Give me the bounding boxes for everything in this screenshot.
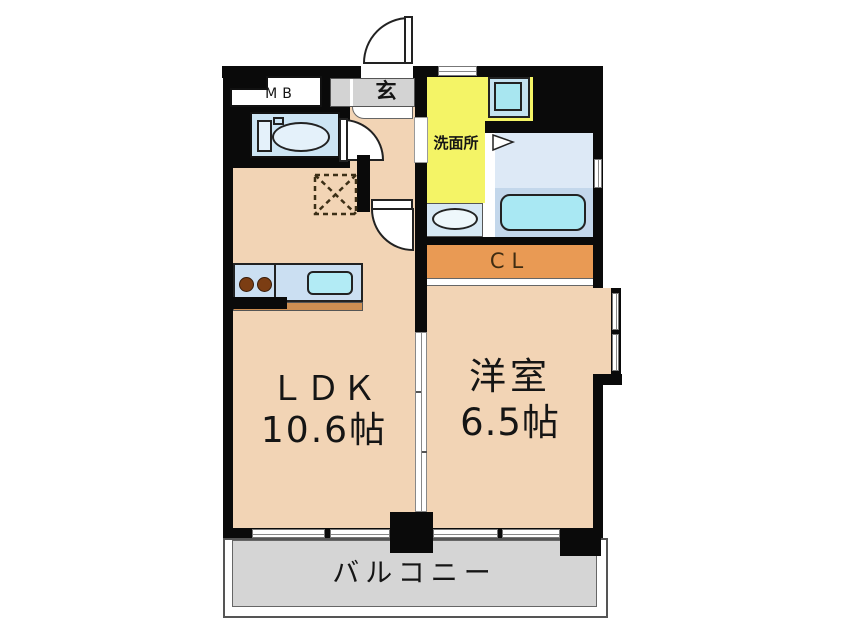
ldk-door-leaf [371,199,413,210]
bay-window-2 [612,334,619,371]
kitchen-counter-divider [274,265,276,300]
toilet-tank-icon [257,120,272,152]
toilet-door-leaf [339,118,348,162]
western-room-window-2 [502,529,560,538]
sliding-door-handle-1 [416,391,421,393]
bathtub-icon [500,194,586,231]
bay-window-1 [612,293,619,330]
washroom-top-window [438,66,477,76]
western-room-window-1 [433,529,498,538]
sliding-door [415,332,427,512]
vanity-sink-icon [432,208,478,230]
sliding-door-track [421,333,422,511]
pillar-mid-bottom [390,512,433,553]
stove-burner-icon-2 [257,277,272,292]
washing-machine-inner [494,82,522,111]
wall-under-laundry [485,121,601,133]
entrance-divider [350,79,353,106]
entrance-label: 玄 [360,80,412,102]
wall-corridor-ldk [357,155,370,212]
bay-bottom-wall [593,374,622,385]
wall-right-lower [593,385,603,538]
meter-box-label: MB [240,87,322,102]
bathroom-side-window [594,159,602,188]
western-room-size-label: 6.5帖 [427,404,593,443]
ldk-size-label: 10.6帖 [233,412,415,450]
balcony-label: バルコニー [232,560,597,588]
toilet-bowl-icon [272,122,330,152]
wall-hall-vertical [415,77,427,332]
washing-machine-icon [488,77,530,118]
refrigerator-space-icon [313,173,358,216]
western-room-name-label: 洋室 [427,358,593,397]
pillar-right-bottom [560,528,601,556]
entrance-door-leaf [404,16,413,64]
western-room-bay [593,288,613,374]
ldk-window-2 [330,529,390,538]
washroom-label: 洗面所 [426,136,486,152]
ldk-name-label: ＬＤＫ [233,372,415,408]
kitchen-sink-icon [307,271,353,295]
kitchen-partition [233,297,287,309]
sliding-door-handle-2 [422,451,427,453]
entrance-door-threshold [361,64,413,78]
stove-burner-icon-1 [239,277,254,292]
floor-plan: 玄 MB 洗面所 CL [0,0,846,634]
closet-label: CL [427,250,593,272]
ldk-window-1 [252,529,325,538]
toilet-button-icon [273,117,284,125]
toilet-room [250,112,340,158]
closet-track [427,278,593,286]
bathroom-door-icon [490,133,516,153]
washroom-door [414,117,428,163]
